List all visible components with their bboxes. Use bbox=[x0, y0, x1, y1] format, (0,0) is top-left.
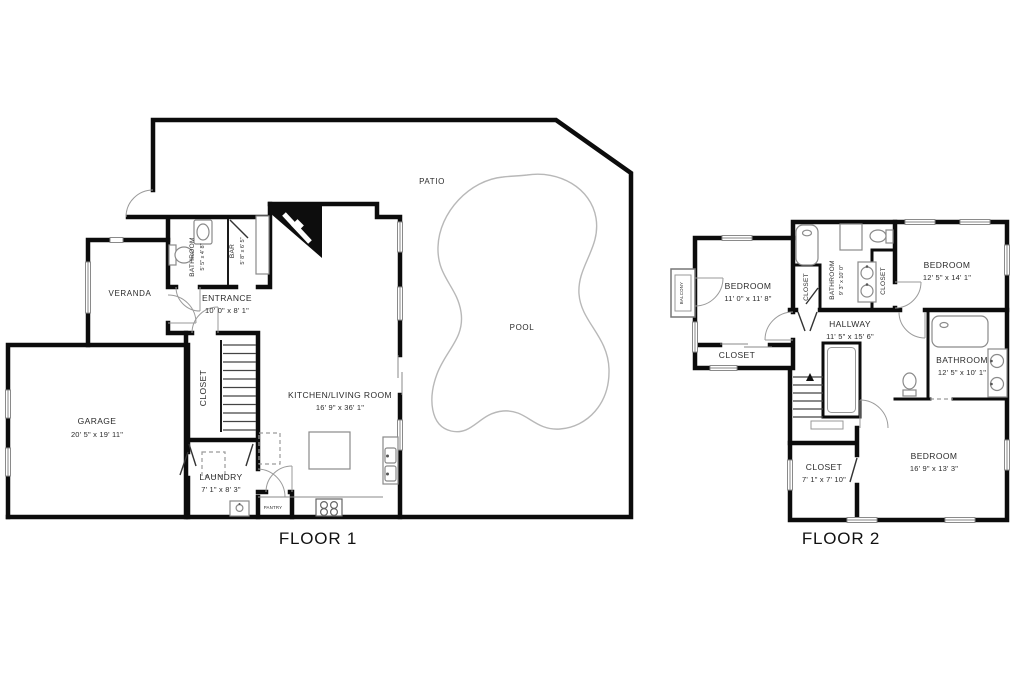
floor2-plan: BALCONY bbox=[671, 220, 1010, 549]
balcony: BALCONY bbox=[671, 269, 695, 317]
fireplace bbox=[270, 204, 322, 258]
closet-strip-label: CLOSET bbox=[719, 350, 755, 360]
bedroom2-dims: 12' 5" x 14' 1" bbox=[923, 273, 971, 282]
bedroom2-label: BEDROOM bbox=[924, 260, 971, 270]
bar-label: BAR bbox=[229, 244, 236, 258]
closet-right-label: CLOSET bbox=[880, 267, 887, 295]
floor1-kitchen-walls bbox=[270, 204, 400, 517]
garage-dims: 20' 5" x 19' 11" bbox=[71, 430, 123, 439]
pool-shape bbox=[432, 174, 609, 432]
floorplan-canvas: PATIO POOL VERANDA GARAGE 20' 5" x 19' 1… bbox=[0, 0, 1024, 683]
laundry-label: LAUNDRY bbox=[199, 472, 242, 482]
bathroom1-label: BATHROOM bbox=[189, 237, 196, 276]
patio-label: PATIO bbox=[419, 177, 445, 186]
veranda-label: VERANDA bbox=[109, 289, 152, 298]
stove-icon bbox=[316, 499, 342, 516]
bar-dims: 5' 8" x 6' 5" bbox=[240, 237, 246, 264]
kitchen-island bbox=[309, 432, 350, 469]
shower-icon bbox=[840, 224, 862, 250]
floor1-title: FLOOR 1 bbox=[279, 529, 357, 548]
bedroom3-dims: 16' 9" x 13' 3" bbox=[910, 464, 958, 473]
bedroom1-dims: 11' 0" x 11' 8" bbox=[724, 294, 771, 303]
toilet-icon bbox=[870, 230, 893, 243]
stairs-landing bbox=[811, 421, 843, 429]
entrance-label: ENTRANCE bbox=[202, 293, 252, 303]
closet-left-label: CLOSET bbox=[803, 273, 810, 301]
bathroom-small-label: BATHROOM bbox=[829, 260, 836, 299]
garage-label: GARAGE bbox=[78, 416, 117, 426]
double-sink-icon bbox=[858, 262, 876, 302]
bathroom-main-label: BATHROOM bbox=[936, 355, 988, 365]
kitchen-sink-icon bbox=[383, 437, 398, 484]
kitchen-label: KITCHEN/LIVING ROOM bbox=[288, 390, 392, 400]
bedroom1-label: BEDROOM bbox=[725, 281, 772, 291]
pantry-label: PANTRY bbox=[264, 505, 283, 510]
pool-label: POOL bbox=[510, 323, 535, 332]
hallway-dims: 11' 5" x 15' 6" bbox=[826, 332, 874, 341]
double-sink-icon bbox=[988, 349, 1007, 397]
floor1-stairs bbox=[223, 345, 256, 430]
bathtub-icon bbox=[796, 225, 818, 265]
balcony-label: BALCONY bbox=[679, 282, 684, 304]
bedroom3-label: BEDROOM bbox=[911, 451, 958, 461]
floorplan-page: PATIO POOL VERANDA GARAGE 20' 5" x 19' 1… bbox=[0, 0, 1024, 683]
floor2-title: FLOOR 2 bbox=[802, 529, 880, 548]
sink-icon bbox=[194, 220, 212, 244]
bathroom1-dims: 5' 5" x 4' 8" bbox=[200, 243, 206, 270]
entrance-dims: 10' 0" x 8' 1" bbox=[205, 306, 249, 315]
bathroom-main-dims: 12' 5" x 10' 1" bbox=[938, 368, 986, 377]
closet4-dims: 7' 1" x 7' 10" bbox=[802, 475, 846, 484]
bathtub-icon bbox=[932, 316, 988, 347]
closet4-label: CLOSET bbox=[806, 462, 842, 472]
closet-f1-label: CLOSET bbox=[198, 370, 208, 406]
laundry-sink-icon bbox=[230, 501, 249, 516]
laundry-dims: 7' 1" x 8' 3" bbox=[201, 485, 241, 494]
hallway-label: HALLWAY bbox=[829, 319, 871, 329]
bathroom-small-dims: 9' 3" x 10' 0" bbox=[839, 265, 845, 295]
floor1-plan: PATIO POOL VERANDA GARAGE 20' 5" x 19' 1… bbox=[6, 120, 632, 548]
bar-counter bbox=[256, 216, 269, 274]
floor2-stairs bbox=[793, 343, 860, 429]
kitchen-dims: 16' 9" x 36' 1" bbox=[316, 403, 364, 412]
fridge-outline bbox=[259, 433, 280, 464]
toilet-icon bbox=[903, 373, 916, 396]
